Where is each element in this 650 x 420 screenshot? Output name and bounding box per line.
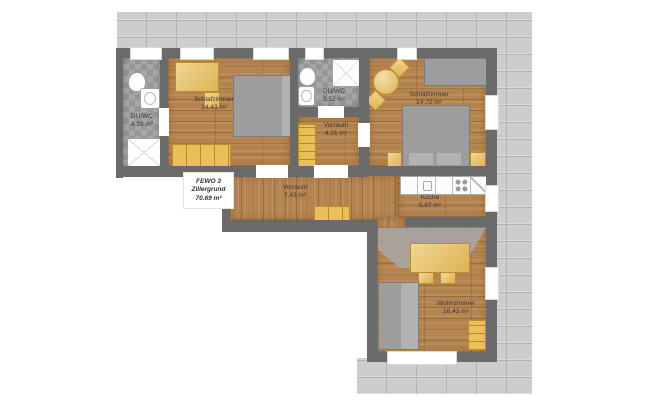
terrace-door [387,351,457,365]
wardrobe-small [298,124,316,168]
dining-chair-2 [440,272,456,284]
unit-label-box: FEWO 3 Zillergrund 70.69 m² [183,172,234,209]
room-area: 7.43 m² [283,192,308,200]
room-name: Wohnzimmer [437,300,475,308]
room-label-kueche: Küche 5.87 m² [419,194,441,210]
unit-location: Zillergrund [184,186,233,194]
sofa [378,282,419,350]
room-area: 4.01 m² [324,130,349,138]
unit-total-area: 70.69 m² [184,195,233,203]
window-east-living [485,267,499,300]
wall-kitchen-bottom [405,217,497,227]
room-area: 14.43 m² [194,104,233,112]
washbasin-left-icon [140,88,160,109]
room-area: 5.87 m² [419,202,441,210]
floor-plan: DU/WC 4.28 m² Schlafzimmer 14.43 m² DU/W… [0,0,650,420]
room-name: Vorraum [324,122,349,130]
sideboard-corridor [314,206,350,221]
stove-icon [453,177,470,194]
room-label-vorraum-main: Vorraum 7.43 m² [283,184,308,200]
window-duwc-small [305,47,324,60]
dresser-left [172,144,231,167]
dining-table [410,243,470,273]
dining-chair-1 [418,272,434,284]
room-area: 14.72 m² [409,99,448,107]
door-bedroomleft [256,165,288,178]
room-name: Küche [419,194,441,202]
window-east-bedroom [485,95,499,130]
bed-left [233,75,293,137]
room-label-wohnzimmer: Wohnzimmer 16.43 m² [437,300,475,316]
room-name: Vorraum [283,184,308,192]
unit-name: FEWO 3 [184,178,233,186]
wardrobe-right [424,58,488,86]
toilet-small-icon [299,67,316,86]
bed-right-pillow-1 [409,153,433,165]
wall-corridor-bottom [222,220,377,232]
bed-right-pillow-2 [437,153,461,165]
room-name: DU/WC [131,113,153,121]
window-bedroomleft-1 [180,47,214,60]
door-vorraum-small [314,165,348,178]
room-area: 16.43 m² [437,308,475,316]
room-area: 4.28 m² [131,121,153,129]
room-label-schlafzimmer-right: Schlafzimmer 14.72 m² [409,91,448,107]
shower-small-icon [332,59,360,87]
bed-right [402,105,470,168]
room-name: Schlafzimmer [194,96,233,104]
cabinet-living [468,320,486,350]
door-duwc-left [159,108,169,136]
room-label-duwc-small: DU/WC 3.52 m² [323,88,345,104]
door-bedroomright [358,123,370,147]
wall-living-left [367,220,377,352]
sink-icon [418,177,435,194]
door-duwc-small [318,106,344,118]
room-label-vorraum-small: Vorraum 4.01 m² [324,122,349,138]
room-name: Schlafzimmer [409,91,448,99]
wall-mid-vertical [359,48,369,176]
counter-tile [436,177,453,194]
wall-left-exterior [116,48,123,178]
room-label-duwc-left: DU/WC 4.28 m² [131,113,153,129]
window-east-kitchen [485,185,499,212]
window-bedroomright [397,47,417,60]
kitchen-counter [400,176,488,195]
room-label-schlafzimmer-left: Schlafzimmer 14.43 m² [194,96,233,112]
window-bedroomleft-2 [253,47,289,60]
room-area: 3.52 m² [323,96,345,104]
window-duwc-left [130,47,162,60]
desk [175,62,219,92]
wall-bedroomright-bottom [359,166,497,176]
washbasin-small-icon [298,86,315,106]
room-name: DU/WC [323,88,345,96]
counter-tile [401,177,418,194]
sofa-seat [401,283,418,349]
shower-left-icon [127,138,161,167]
